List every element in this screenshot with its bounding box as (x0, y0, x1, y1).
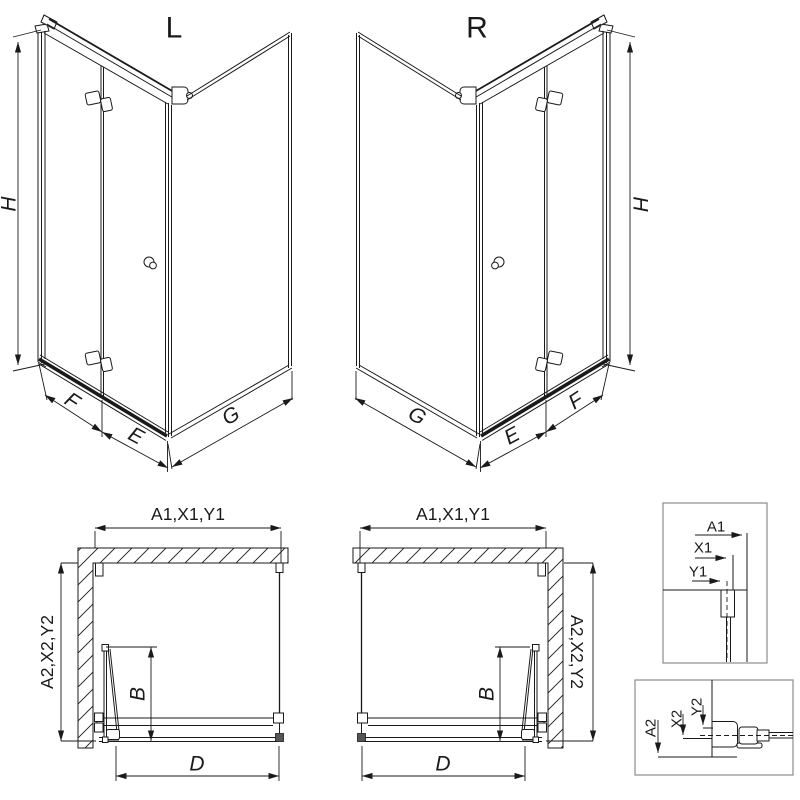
plan-lineart-right (358, 563, 547, 743)
detail-bottom-a2-label: A2 (643, 719, 660, 737)
detail-view-top: A1 X1 Y1 (663, 503, 767, 663)
shower-enclosure-technical-drawing: L H F E G R H F E G A1,X1,Y1 A2,X2,Y2 B … (0, 0, 800, 800)
detail-top-wall-profile (721, 590, 735, 617)
detail-view-bottom: A2 X2 Y2 (635, 680, 793, 775)
plan-right-side-dims-label: A2,X2,Y2 (567, 615, 587, 689)
detail-top-y1-label: Y1 (689, 564, 707, 581)
detail-bottom-wall-profile (712, 722, 738, 748)
detail-bottom-x2-label: X2 (669, 710, 686, 728)
iso-right-h-label: H (629, 196, 652, 212)
detail-bottom-y2-label: Y2 (689, 698, 706, 716)
iso-right-g-label: G (404, 402, 430, 430)
plan-left-side-dims-label: A2,X2,Y2 (37, 615, 57, 689)
iso-lineart-left (13, 15, 293, 472)
iso-right-variant-label: R (466, 12, 488, 45)
plan-right-d-label: D (435, 753, 450, 776)
iso-view-right: R H F E G (355, 12, 652, 473)
plan-right-top-dims-label: A1,X1,Y1 (416, 504, 490, 524)
iso-left-g-label: G (218, 402, 244, 430)
iso-right-f-label: F (564, 387, 588, 414)
iso-left-variant-label: L (166, 12, 183, 45)
plan-right-b-label: B (476, 687, 499, 701)
plan-left-extension-lines (61, 531, 281, 781)
plan-left-top-dims-label: A1,X1,Y1 (151, 504, 225, 524)
plan-left-b-label: B (127, 687, 150, 701)
plan-lineart-left (95, 563, 284, 743)
iso-view-left: L H F E G (0, 12, 293, 473)
plan-view-left: A1,X1,Y1 A2,X2,Y2 B D (37, 504, 288, 781)
plan-view-right: A1,X1,Y1 A2,X2,Y2 B D (353, 504, 593, 781)
detail-top-a1-label: A1 (707, 519, 725, 536)
iso-lineart-right (355, 15, 635, 472)
iso-left-f-label: F (60, 388, 84, 415)
detail-top-x1-label: X1 (694, 540, 712, 557)
iso-left-h-label: H (0, 196, 21, 212)
plan-left-d-label: D (189, 753, 204, 776)
